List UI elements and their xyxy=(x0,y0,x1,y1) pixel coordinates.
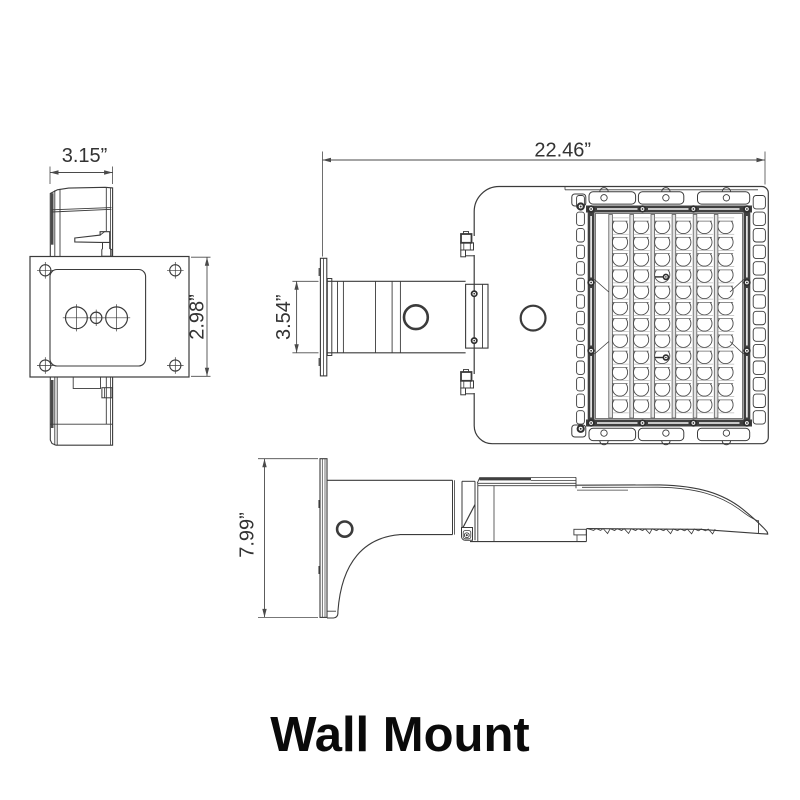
svg-text:3.54”: 3.54” xyxy=(273,294,295,340)
svg-text:2.98”: 2.98” xyxy=(187,294,209,340)
svg-text:7.99”: 7.99” xyxy=(237,512,259,558)
svg-text:3.15”: 3.15” xyxy=(62,145,108,167)
svg-text:22.46”: 22.46” xyxy=(534,140,591,162)
svg-text:Wall Mount: Wall Mount xyxy=(270,708,529,762)
